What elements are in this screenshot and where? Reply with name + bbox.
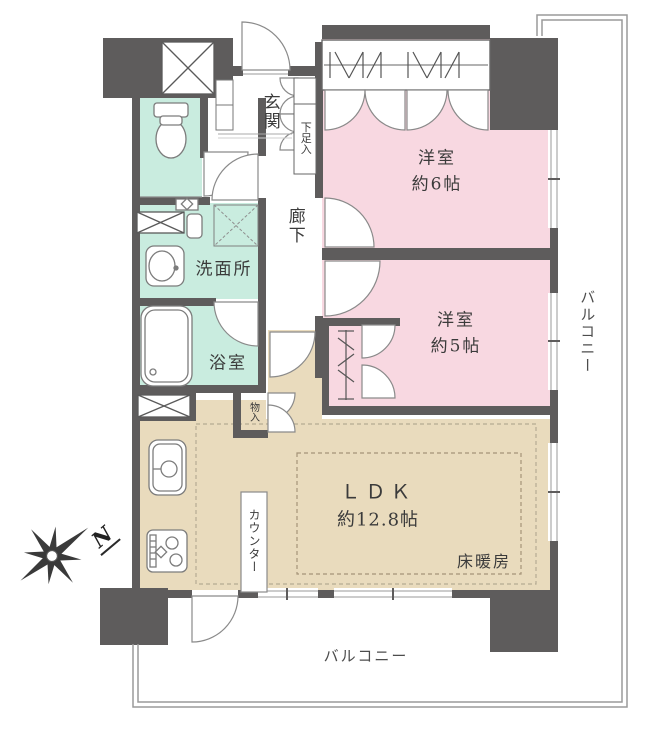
shoe-cabinet-label: 下足入 (297, 122, 314, 155)
compass-icon (0, 501, 109, 608)
wall-room-divider (322, 248, 558, 260)
wall-top-right-block (490, 38, 558, 130)
room-size: 約6帖 (412, 172, 463, 198)
room-name: 洋室 (431, 309, 482, 335)
toilet-icon (160, 116, 182, 125)
floor-heating-label: 床暖房 (457, 550, 511, 574)
faucet-icon (161, 461, 177, 477)
toilet-icon (156, 120, 186, 158)
hallway-label: 廊下 (281, 207, 307, 245)
wall (315, 316, 323, 378)
storage-label: 物入 (246, 402, 261, 422)
wall-right (550, 228, 558, 293)
wall-closet (322, 318, 329, 408)
entrance-label: 玄関 (256, 93, 282, 131)
bathroom-label: 浴室 (209, 351, 247, 377)
burner-icon (170, 554, 182, 566)
balcony-door-arc (192, 596, 238, 642)
wall (140, 298, 216, 306)
room-name: ＬＤＫ (337, 477, 419, 507)
bedroom1-label: 洋室 約6帖 (412, 147, 463, 198)
wall-bottom-left-block (100, 588, 168, 645)
balcony-bottom-label: バルコニー (324, 645, 409, 668)
wall (322, 406, 558, 415)
closet-bedroom1 (322, 40, 490, 90)
room-size: 約12.8帖 (337, 507, 419, 534)
toilet-icon (154, 103, 188, 117)
faucet-icon (174, 266, 178, 270)
wall-bottom (318, 590, 334, 598)
bedroom2-label: 洋室 約5帖 (431, 309, 482, 360)
wall (258, 198, 266, 299)
washbasin-icon (149, 251, 175, 281)
shoe-cabinet-box (294, 78, 316, 104)
cabinet-icon (216, 80, 233, 105)
wall (258, 298, 266, 390)
water-heater-icon (187, 214, 202, 238)
ldk-label: ＬＤＫ 約12.8帖 (337, 477, 419, 534)
washroom-label: 洗面所 (196, 257, 253, 283)
wall-right (550, 541, 558, 592)
wall-right (550, 390, 558, 443)
washing-machine-icon (214, 205, 258, 246)
counter-label: カウンター (245, 509, 263, 574)
floor-plan-drawing (0, 0, 648, 738)
cabinet-icon (216, 105, 233, 130)
burner-icon (166, 537, 178, 549)
room-size: 約5帖 (431, 334, 482, 360)
wall-storage (233, 430, 268, 438)
entry-door-arc (242, 22, 290, 70)
floor-plan: 洋室 約6帖 洋室 約5帖 ＬＤＫ 約12.8帖 床暖房 玄関 下足入 廊下 洗… (0, 0, 648, 738)
room-name: 洋室 (412, 147, 463, 173)
wall-top (322, 25, 490, 39)
wall (215, 66, 243, 76)
drain-icon (150, 369, 156, 375)
wall (200, 98, 208, 158)
wall-bottom-right-block (490, 592, 558, 652)
wall-left (132, 98, 140, 592)
balcony-right-label: バルコニー (576, 290, 599, 375)
grill-icon (150, 535, 156, 567)
